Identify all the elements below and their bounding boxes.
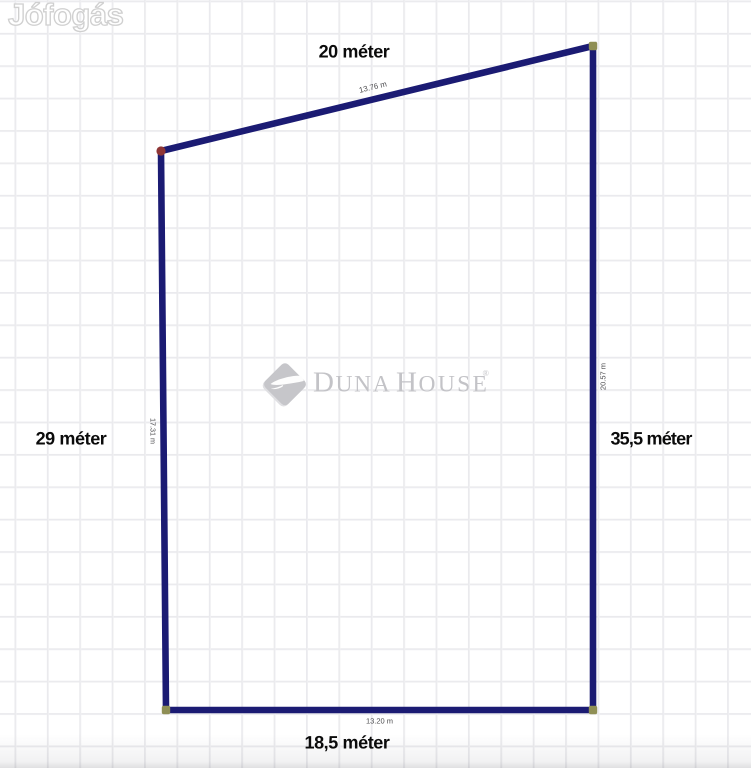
svg-text:20.57 m: 20.57 m [599,363,608,390]
svg-text:HOUSE: HOUSE [396,367,489,399]
svg-text:13.76 m: 13.76 m [358,79,388,94]
svg-text:®: ® [483,368,490,378]
svg-text:17.31 m: 17.31 m [149,418,158,444]
svg-text:13.20 m: 13.20 m [366,716,393,725]
svg-text:DUNA: DUNA [313,367,391,399]
